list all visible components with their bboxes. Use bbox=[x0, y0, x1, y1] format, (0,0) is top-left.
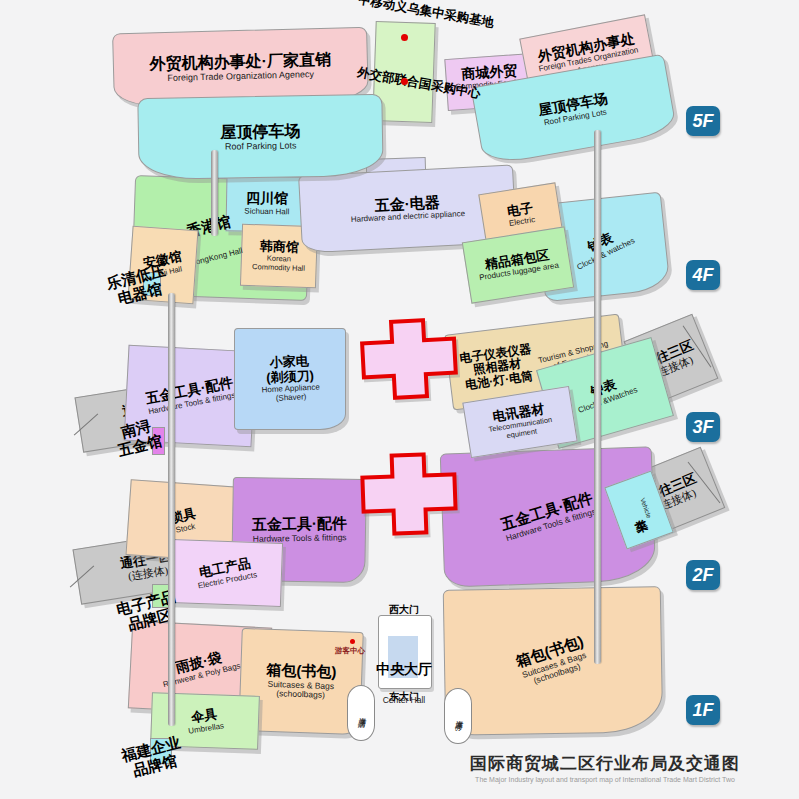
red-dot bbox=[401, 34, 408, 41]
support-pole bbox=[594, 130, 601, 664]
area-roof-parking-left: 屋顶停车场 Roof Parking Lots bbox=[137, 94, 383, 180]
floor-badge-1f: 1F bbox=[686, 695, 720, 725]
map-title: 国际商贸城二区行业布局及交通图 The Major Industry layou… bbox=[440, 752, 770, 783]
area-bags-right-1f: 箱包(书包) Suitcases & Bags (schoolbags) bbox=[443, 586, 664, 736]
map-title-en: The Major Industry layout and transport … bbox=[440, 776, 770, 783]
red-dot bbox=[401, 78, 408, 85]
area-home-appliance: 小家电 (剃须刀) Home Appliance (Shaver) bbox=[234, 328, 346, 430]
area-label-center-hall: 中央大厅 Center Hall bbox=[364, 644, 444, 723]
floor-badge-2f: 2F bbox=[686, 560, 720, 590]
floor-badge-4f: 4F bbox=[686, 260, 720, 290]
map-title-zh: 国际商贸城二区行业布局及交通图 bbox=[440, 752, 770, 775]
floor-map: 外贸机构办事处·厂家直销 Foreign Trade Organization … bbox=[0, 0, 799, 799]
floor-badge-5f: 5F bbox=[686, 106, 720, 136]
floor-badge-3f: 3F bbox=[686, 412, 720, 442]
label-west-gate: 西大门 bbox=[382, 603, 426, 617]
support-pole bbox=[211, 150, 218, 236]
red-dot bbox=[350, 639, 355, 644]
support-pole bbox=[168, 293, 175, 726]
stairs-cross-2f bbox=[359, 450, 460, 537]
stairs-cross-3f bbox=[358, 315, 460, 402]
ocean-business-callout: 海洋商务 bbox=[444, 688, 472, 744]
